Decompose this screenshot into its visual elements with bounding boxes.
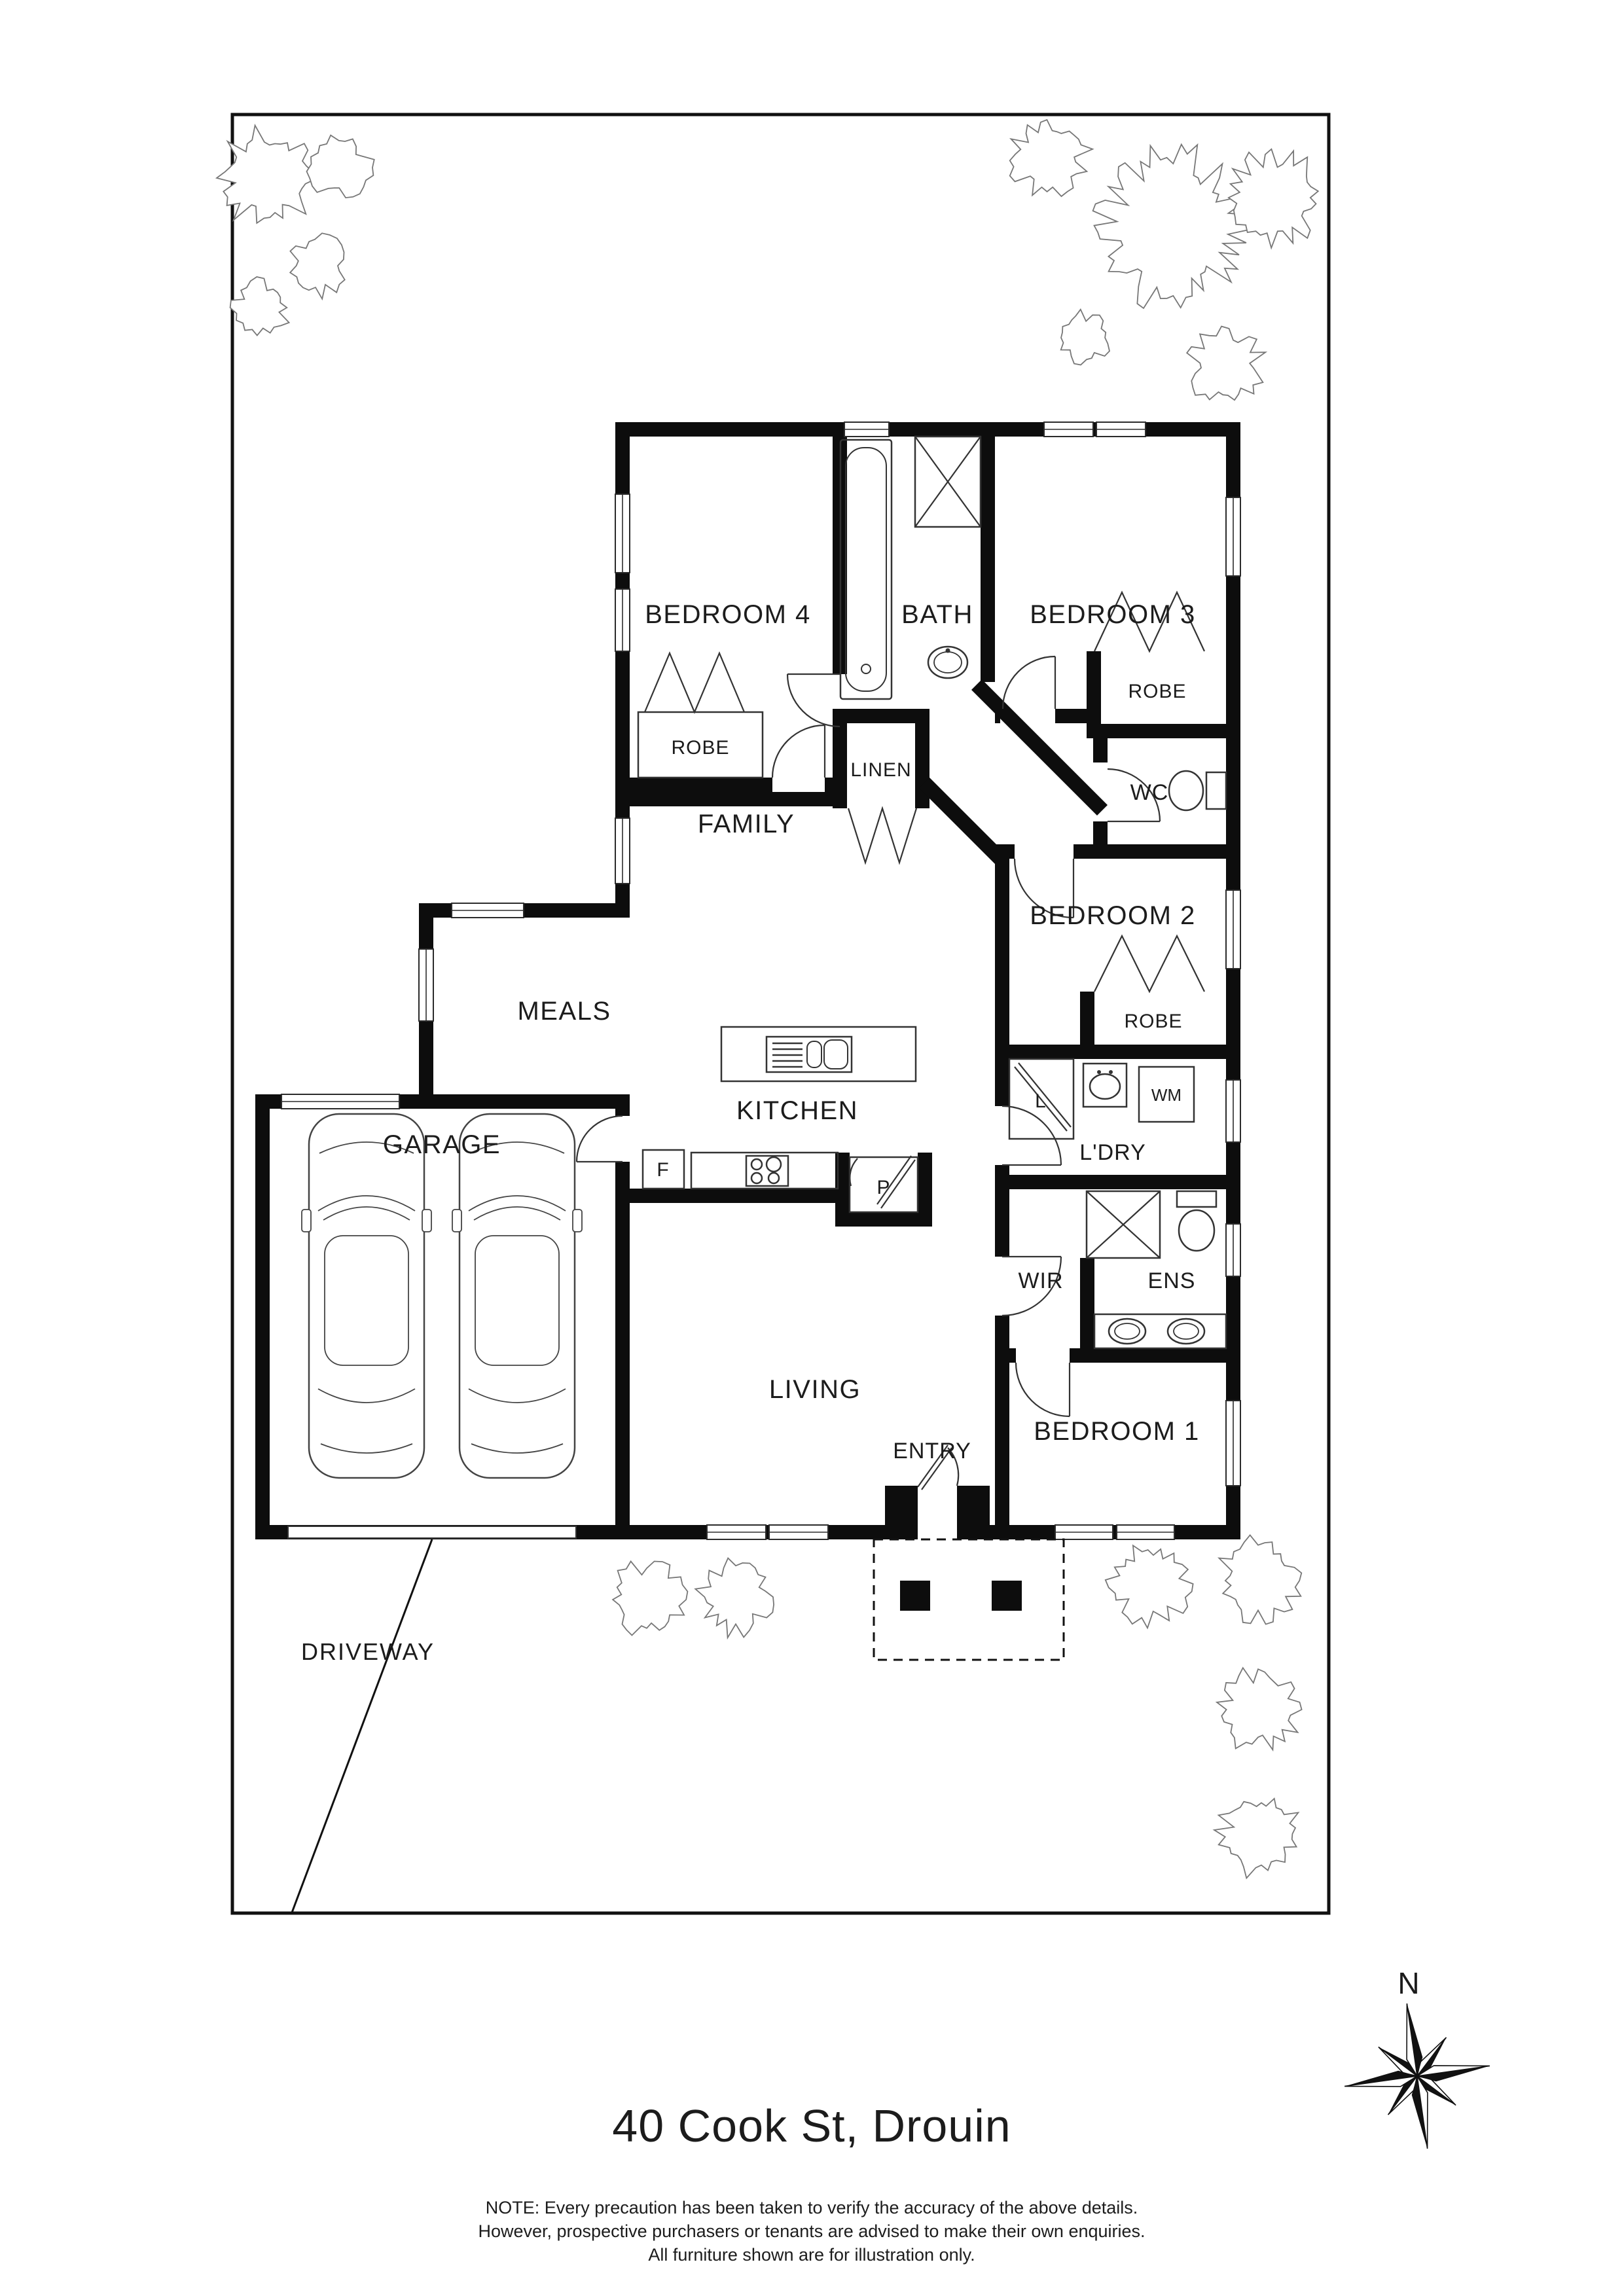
label-bedroom3: BEDROOM 3 bbox=[1030, 600, 1196, 629]
window-icon bbox=[769, 1525, 828, 1539]
note-line-1: NOTE: Every precaution has been taken to… bbox=[486, 2198, 1138, 2217]
label-kitchen: KITCHEN bbox=[736, 1096, 858, 1125]
label-bedroom4: BEDROOM 4 bbox=[645, 600, 811, 629]
window-icon bbox=[281, 1094, 399, 1109]
window-icon bbox=[615, 818, 630, 884]
window-icon bbox=[615, 589, 630, 651]
window-icon bbox=[452, 903, 524, 918]
label-bedroom1: BEDROOM 1 bbox=[1034, 1417, 1200, 1446]
label-fridge: F bbox=[657, 1159, 669, 1181]
window-icon bbox=[844, 422, 889, 437]
page-title: 40 Cook St, Drouin bbox=[612, 2100, 1011, 2151]
window-icon bbox=[1096, 422, 1146, 437]
label-linen: LINEN bbox=[850, 759, 911, 781]
label-family: FAMILY bbox=[698, 810, 795, 838]
label-ens: ENS bbox=[1148, 1268, 1196, 1293]
label-wir: WIR bbox=[1018, 1268, 1063, 1293]
label-bath: BATH bbox=[901, 600, 973, 629]
floor-plan-canvas: BEDROOM 4 BATH BEDROOM 3 ROBE ROBE LINEN… bbox=[0, 0, 1624, 2296]
window-icon bbox=[1226, 1224, 1240, 1276]
label-laundry: L'DRY bbox=[1079, 1140, 1146, 1165]
note-line-2: However, prospective purchasers or tenan… bbox=[478, 2221, 1145, 2241]
label-robe-bed4: ROBE bbox=[671, 737, 729, 759]
window-icon bbox=[615, 494, 630, 573]
window-icon bbox=[1226, 1401, 1240, 1486]
window-icon bbox=[1055, 1525, 1113, 1539]
label-entry: ENTRY bbox=[893, 1439, 971, 1463]
window-icon bbox=[1226, 1080, 1240, 1142]
label-driveway: DRIVEWAY bbox=[301, 1638, 435, 1665]
label-garage: GARAGE bbox=[383, 1130, 501, 1159]
label-robe-bed2: ROBE bbox=[1124, 1011, 1182, 1032]
label-robe-bed3: ROBE bbox=[1128, 681, 1186, 702]
note-line-3: All furniture shown are for illustration… bbox=[648, 2245, 975, 2265]
porch-post-icon bbox=[900, 1581, 930, 1611]
window-icon bbox=[707, 1525, 766, 1539]
label-wc: WC bbox=[1130, 780, 1169, 805]
window-icon bbox=[1226, 890, 1240, 969]
window-icon bbox=[1117, 1525, 1174, 1539]
window-icon bbox=[419, 949, 433, 1021]
label-pantry: P bbox=[876, 1177, 890, 1198]
label-washing-machine: WM bbox=[1151, 1085, 1182, 1105]
garage-door-icon bbox=[288, 1526, 576, 1538]
label-bedroom2: BEDROOM 2 bbox=[1030, 901, 1196, 930]
car-icon-right bbox=[452, 1114, 582, 1478]
title-block: 40 Cook St, Drouin NOTE: Every precautio… bbox=[478, 2100, 1145, 2265]
window-icon bbox=[1044, 422, 1093, 437]
car-icon-left bbox=[302, 1114, 431, 1478]
label-living: LIVING bbox=[769, 1375, 861, 1404]
window-icon bbox=[1226, 497, 1240, 576]
compass-star-icon bbox=[1344, 2003, 1490, 2149]
compass-rose-icon: N bbox=[1344, 1966, 1490, 2149]
compass-north-label: N bbox=[1398, 1966, 1419, 2000]
label-linen-cupboard: L bbox=[1035, 1090, 1047, 1112]
porch-post-icon bbox=[992, 1581, 1022, 1611]
label-meals: MEALS bbox=[517, 997, 611, 1026]
